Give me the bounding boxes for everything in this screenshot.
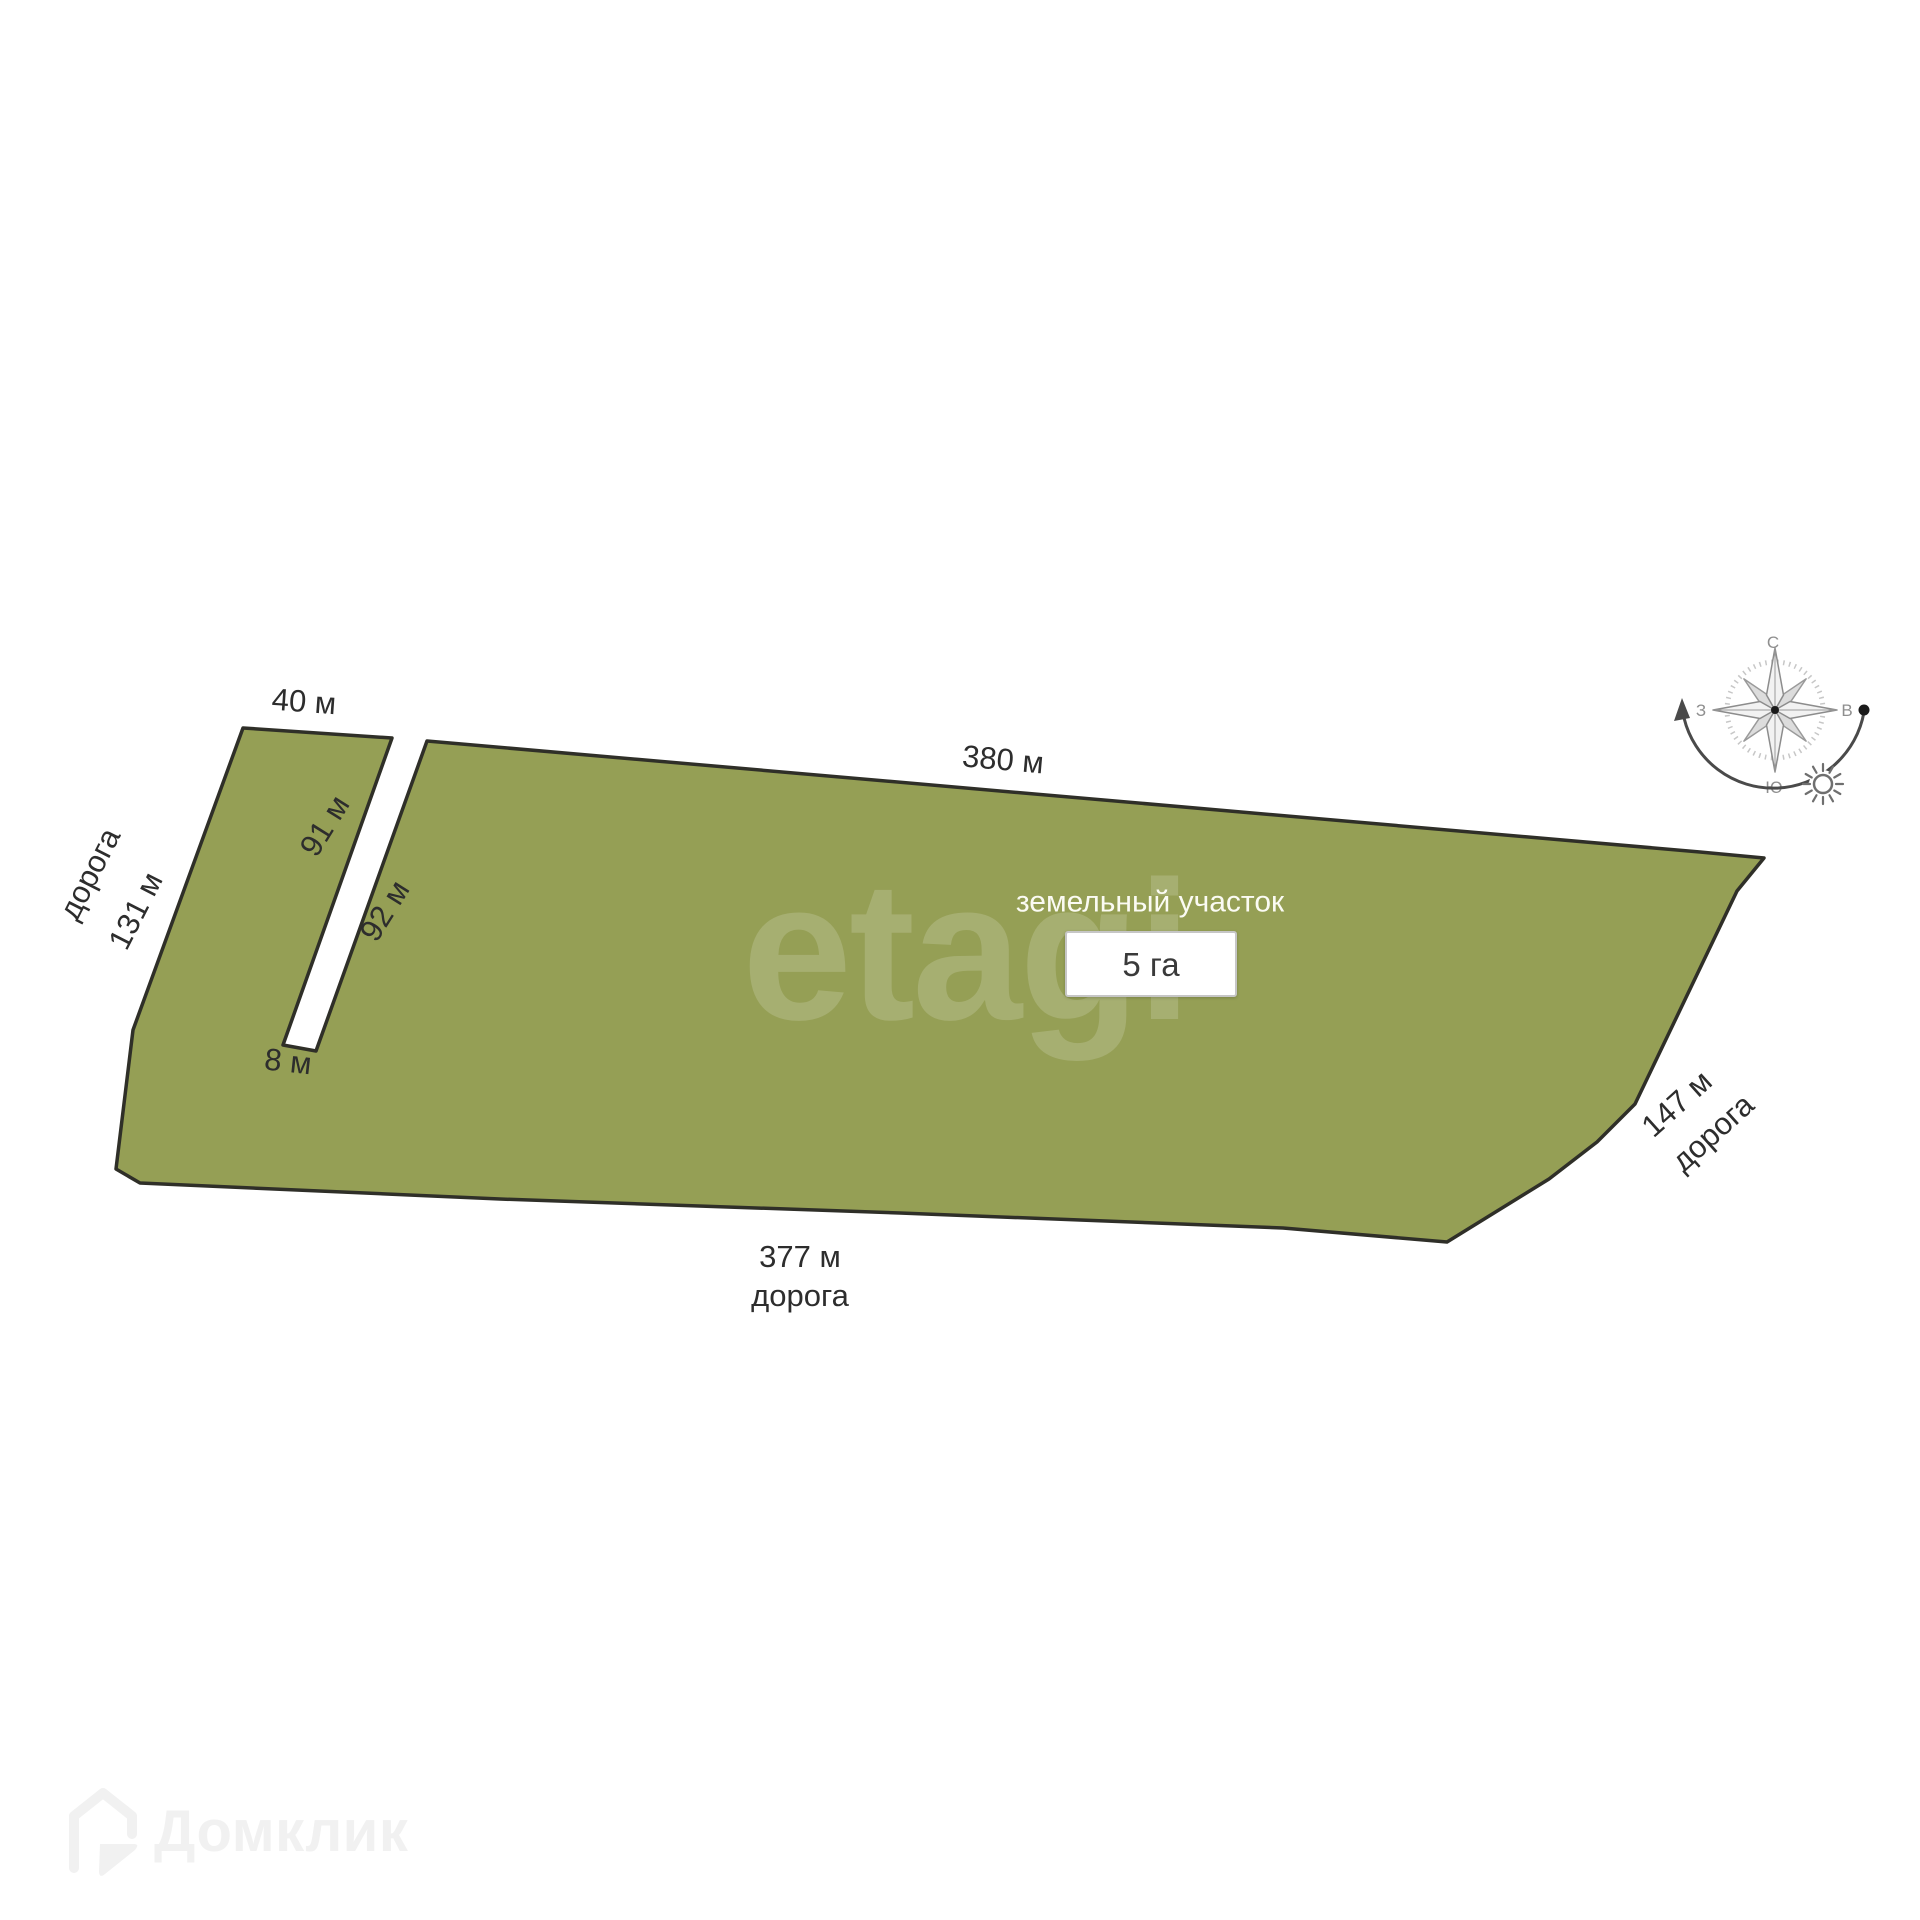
dimension-label-bottom: 377 м — [759, 1240, 841, 1274]
compass-rose: С Ю В З — [1674, 633, 1870, 804]
domclick-watermark: Домклик — [66, 1782, 408, 1882]
area-value: 5 га — [1122, 948, 1179, 981]
sun-icon — [1803, 764, 1843, 804]
road-label-bottom: дорога — [751, 1279, 849, 1313]
sun-path-start-dot — [1859, 705, 1870, 716]
site-plan-canvas: С Ю В З — [0, 0, 1920, 1920]
domclick-watermark-text: Домклик — [154, 1803, 408, 1861]
compass-letter-north: С — [1767, 633, 1779, 652]
compass-center-dot — [1771, 706, 1779, 714]
dimension-label-top: 380 м — [961, 739, 1045, 780]
dimension-label-top-small: 40 м — [271, 683, 338, 722]
plot-title: земельный участок — [1016, 886, 1284, 919]
compass-letter-west: З — [1696, 701, 1706, 720]
sun-path-arrowhead — [1674, 698, 1690, 721]
dimension-label-notch-bottom: 8 м — [263, 1043, 313, 1082]
area-value-box: 5 га — [1065, 931, 1237, 997]
compass-letter-east: В — [1841, 701, 1852, 720]
house-icon — [66, 1784, 140, 1880]
